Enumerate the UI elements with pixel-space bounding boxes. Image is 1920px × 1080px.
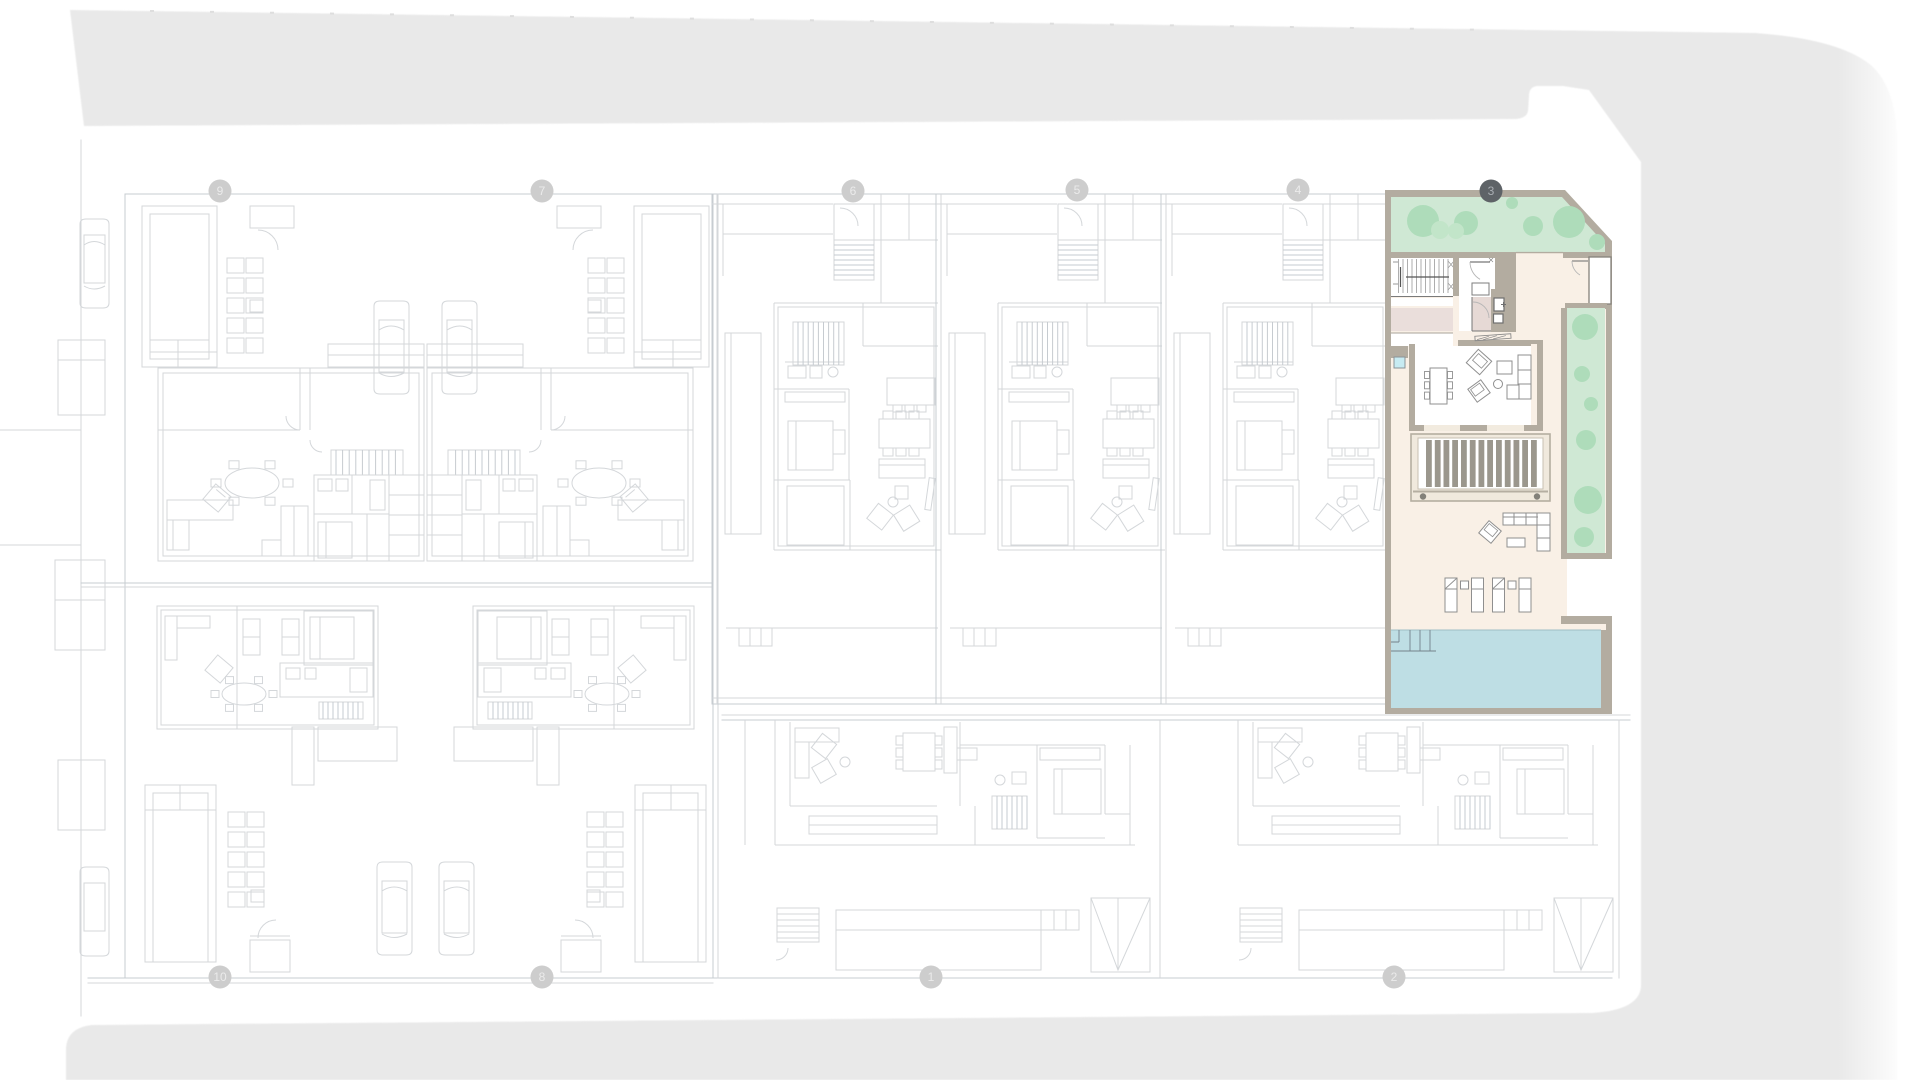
svg-text:2: 2 (1391, 970, 1398, 984)
svg-text:7: 7 (539, 184, 546, 198)
svg-text:6: 6 (850, 184, 857, 198)
svg-text:9: 9 (217, 184, 224, 198)
svg-text:8: 8 (539, 970, 546, 984)
svg-text:10: 10 (213, 970, 227, 984)
svg-text:5: 5 (1074, 183, 1081, 197)
svg-text:3: 3 (1488, 184, 1495, 198)
svg-text:1: 1 (928, 970, 935, 984)
svg-text:4: 4 (1295, 183, 1302, 197)
